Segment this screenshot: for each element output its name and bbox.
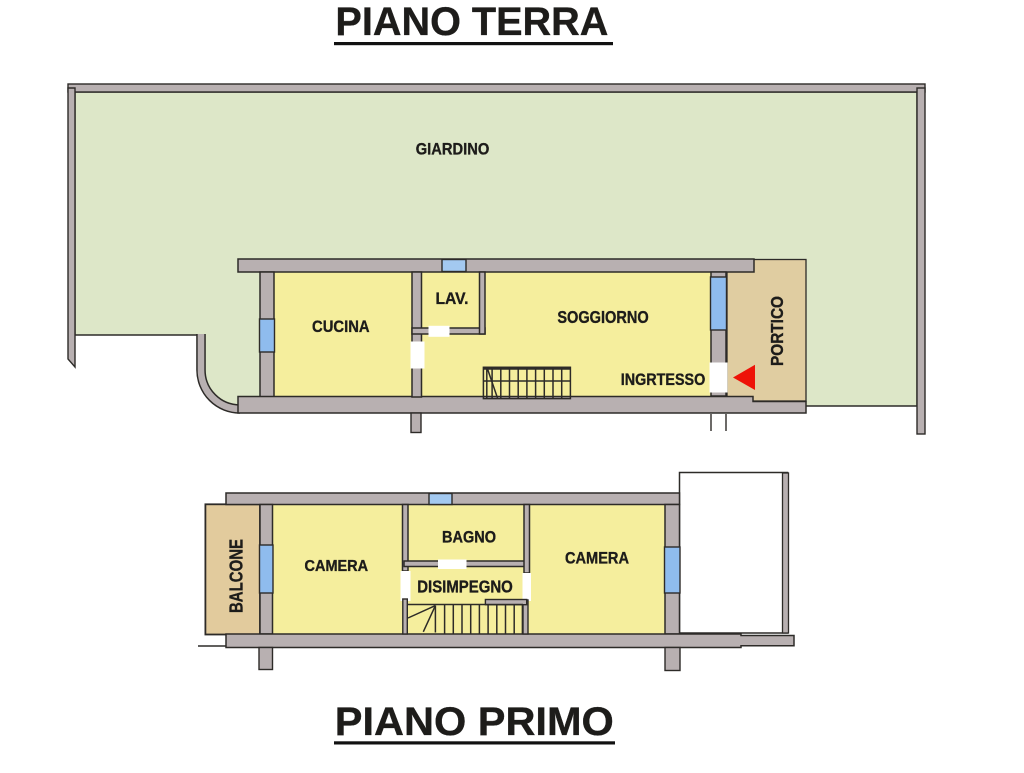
svg-text:LAV.: LAV.	[436, 289, 469, 308]
svg-text:PIANO PRIMO: PIANO PRIMO	[335, 700, 614, 744]
svg-text:BALCONE: BALCONE	[227, 539, 247, 613]
svg-text:BAGNO: BAGNO	[442, 529, 496, 547]
svg-text:CAMERA: CAMERA	[565, 549, 629, 568]
svg-text:CAMERA: CAMERA	[305, 558, 369, 575]
svg-text:INGRTESSO: INGRTESSO	[621, 371, 706, 389]
svg-text:DISIMPEGNO: DISIMPEGNO	[417, 577, 513, 597]
svg-text:SOGGIORNO: SOGGIORNO	[557, 307, 648, 327]
svg-text:PORTICO: PORTICO	[767, 296, 787, 366]
svg-text:PIANO TERRA: PIANO TERRA	[335, 0, 608, 44]
svg-text:CUCINA: CUCINA	[312, 317, 370, 336]
svg-text:GIARDINO: GIARDINO	[416, 140, 490, 159]
